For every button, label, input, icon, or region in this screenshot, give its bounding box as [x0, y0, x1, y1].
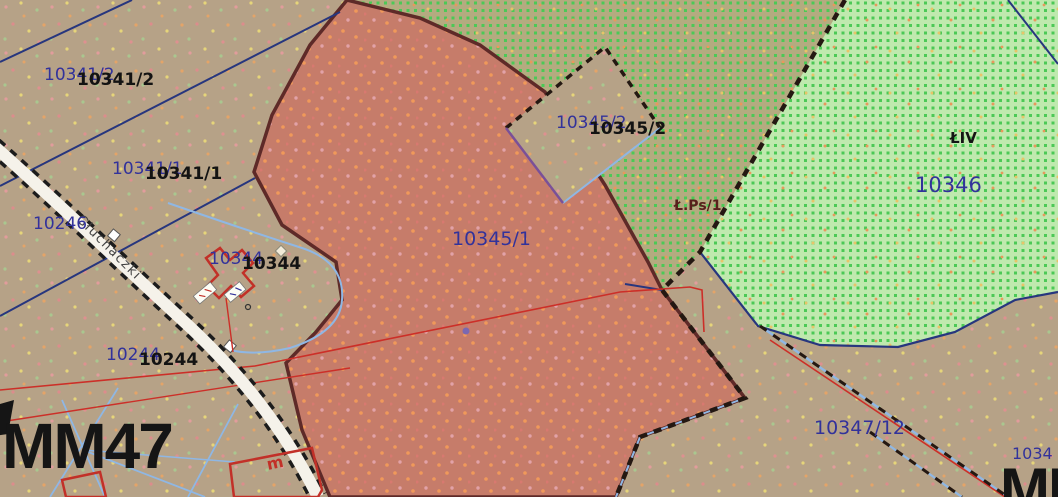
- sheet-label-mm: MM: [1000, 456, 1058, 497]
- parcel-label-10344-dup: 10344: [242, 254, 301, 274]
- map-svg: Głuchaczki m 10341/2 10341/2 10341/1 103…: [0, 0, 1058, 497]
- sheet-label-mm47: MM47: [2, 410, 172, 482]
- map-canvas[interactable]: Głuchaczki m 10341/2 10341/2 10341/1 103…: [0, 0, 1058, 497]
- parcel-label-10244-dup: 10244: [139, 350, 198, 370]
- parcel-label-10246: 10246: [33, 214, 87, 234]
- parcel-label-10341-1-dup: 10341/1: [145, 164, 222, 184]
- purple-point-marker: [463, 328, 470, 335]
- landuse-label-liv: ŁIV: [949, 129, 977, 147]
- landuse-label-lps: Ł.Ps/1: [673, 198, 722, 214]
- parcel-label-10345-1: 10345/1: [452, 228, 531, 250]
- parcel-label-10346: 10346: [915, 173, 982, 197]
- parcel-label-10345-2-dup: 10345/2: [589, 119, 666, 139]
- parcel-label-10341-2-dup: 10341/2: [77, 70, 154, 90]
- parcel-label-10347-12: 10347/12: [814, 417, 905, 439]
